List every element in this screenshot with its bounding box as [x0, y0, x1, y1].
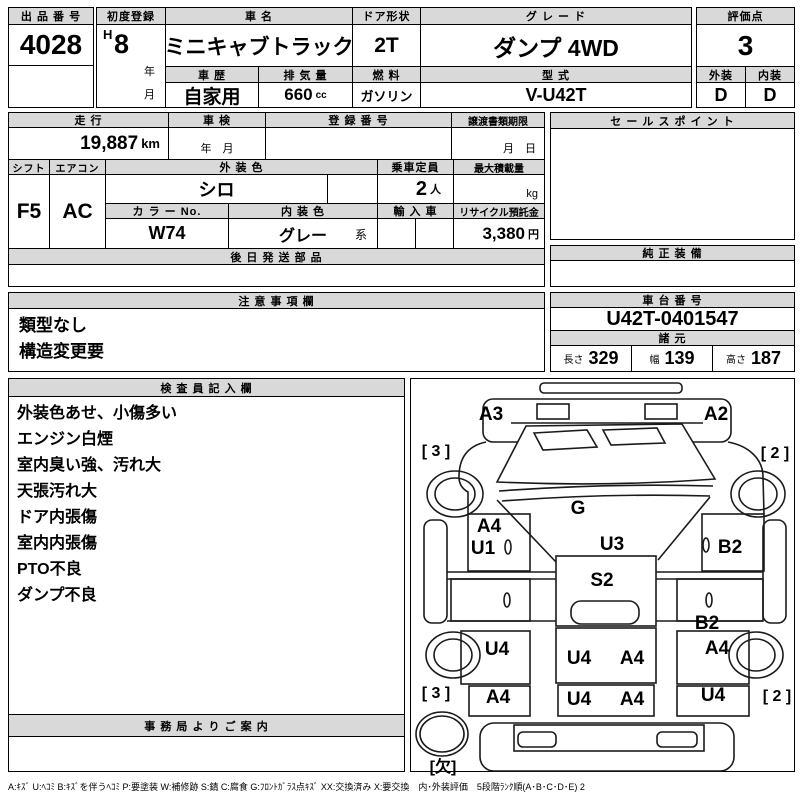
aircon-value: AC	[62, 200, 92, 224]
note-line: 構造変更要	[19, 339, 104, 365]
color-no-cell: W74	[105, 218, 229, 249]
note-line: 類型なし	[19, 313, 87, 339]
equipment-cell	[550, 260, 795, 287]
displacement-header: 排 気 量	[258, 66, 353, 83]
import-cell-2	[415, 218, 454, 249]
damage-code-legend: A:ｷｽﾞ U:ﾍｺﾐ B:ｷｽﾞを伴うﾍｺﾐ P:要塗装 W:補修跡 S:錆 …	[8, 780, 795, 793]
reg-no-header: 登 録 番 号	[265, 112, 452, 128]
car-name-cell: ミニキャブトラック	[165, 24, 353, 67]
exterior-grade-header: 外装	[696, 66, 746, 83]
notes-header: 注 意 事 項 欄	[8, 292, 545, 309]
grade-value: ダンプ 4WD	[493, 29, 619, 63]
spec-width-cell: 幅 139	[631, 345, 713, 372]
chassis-no-cell: U42T-0401547	[550, 307, 795, 331]
fuel-header: 燃 料	[352, 66, 421, 83]
width-label: 幅	[649, 351, 659, 366]
score-header: 評価点	[696, 7, 795, 25]
int-color-value: グレー	[279, 222, 327, 246]
door-value: 2T	[374, 34, 399, 58]
ext-color-sub-cell	[327, 174, 378, 204]
damage-code-a4-left-door: A4	[477, 516, 501, 538]
inspector-line: 天張汚れ大	[17, 479, 97, 505]
damage-code-u4-right-gate: U4	[701, 685, 725, 707]
max-load-cell: kg	[453, 174, 545, 204]
color-no-value: W74	[148, 223, 185, 244]
aircon-cell: AC	[49, 174, 106, 249]
first-reg-header: 初度登録	[96, 7, 166, 25]
later-parts-cell	[8, 264, 545, 287]
door-header: ドア形状	[352, 7, 421, 25]
damage-code-a3: A3	[479, 404, 503, 426]
model-header: 型 式	[420, 66, 692, 83]
import-header: 輸 入 車	[377, 203, 454, 219]
capacity-value: 2	[416, 178, 427, 201]
recycle-header: リサイクル預託金	[453, 203, 545, 219]
reg-no-cell	[265, 127, 452, 160]
int-color-suffix: 系	[355, 226, 367, 243]
auction-no: 4028	[20, 29, 82, 61]
transfer-header: 譲渡書類期限	[451, 112, 545, 128]
sales-points-cell	[550, 128, 795, 240]
import-cell-1	[377, 218, 416, 249]
specs-header: 諸 元	[550, 330, 795, 346]
capacity-header: 乗車定員	[377, 159, 454, 175]
damage-diagram: A3 A2 [ 3 ] [ 2 ] G A4 U1 U3 B2 S2 B2 U4…	[410, 378, 795, 772]
spec-height-cell: 高さ 187	[712, 345, 795, 372]
interior-grade: D	[764, 85, 777, 106]
displacement-value: 660	[284, 85, 312, 105]
damage-code-b2-right-side: B2	[695, 613, 719, 635]
car-name-header: 車 名	[165, 7, 353, 25]
shift-cell: F5	[8, 174, 50, 249]
auction-no-cell: 4028	[8, 24, 94, 66]
ext-color-value: シロ	[199, 176, 235, 202]
ext-color-header: 外 装 色	[105, 159, 378, 175]
displacement-cell: 660 cc	[258, 82, 353, 108]
inspector-header: 検 査 員 記 入 欄	[8, 378, 405, 397]
inspection-value: 年 月	[201, 140, 234, 156]
damage-code-g: G	[571, 498, 586, 520]
model-cell: V-U42T	[420, 82, 692, 108]
auction-no-header: 出 品 番 号	[8, 7, 94, 25]
damage-code-s2: S2	[590, 570, 613, 592]
tire-depth-front-left: [ 3 ]	[422, 443, 450, 461]
damage-code-u4-tailgate: U4	[567, 689, 591, 711]
recycle-unit: 円	[528, 226, 539, 242]
transfer-value: 月 日	[503, 140, 536, 156]
fuel-cell: ガソリン	[352, 82, 421, 108]
interior-grade-cell: D	[745, 82, 795, 108]
first-reg-year: 8	[114, 29, 129, 60]
recycle-cell: 3,380 円	[453, 218, 545, 249]
tire-depth-rear-right: [ 2 ]	[763, 688, 791, 706]
displacement-unit: cc	[316, 90, 327, 101]
damage-code-u3: U3	[600, 534, 624, 556]
damage-code-a4-left-gate: A4	[486, 687, 510, 709]
exterior-grade: D	[715, 85, 728, 106]
history-header: 車 歴	[165, 66, 259, 83]
inspector-line: ドア内張傷	[17, 505, 97, 531]
score-cell: 3	[696, 24, 795, 67]
inspector-line: 室内臭い強、汚れ大	[17, 453, 161, 479]
first-reg-year-suffix: 年	[144, 63, 155, 79]
length-value: 329	[588, 348, 618, 369]
spec-length-cell: 長さ 329	[550, 345, 632, 372]
notes-cell: 類型なし 構造変更要	[8, 308, 545, 372]
transfer-cell: 月 日	[451, 127, 545, 160]
inspection-header: 車 検	[168, 112, 266, 128]
first-reg-month-suffix: 月	[144, 86, 155, 102]
history-value: 自家用	[183, 82, 240, 109]
shift-value: F5	[17, 200, 42, 224]
inspector-line: 外装色あせ、小傷多い	[17, 401, 177, 427]
later-parts-header: 後 日 発 送 部 品	[8, 248, 545, 265]
inspector-line: 室内内張傷	[17, 531, 97, 557]
grade-cell: ダンプ 4WD	[420, 24, 692, 67]
damage-code-a4-tailgate: A4	[620, 689, 644, 711]
inspector-line: エンジン白煙	[17, 427, 113, 453]
chassis-no: U42T-0401547	[606, 308, 738, 331]
interior-grade-header: 内装	[745, 66, 795, 83]
inspector-notes-cell: 外装色あせ、小傷多い エンジン白煙 室内臭い強、汚れ大 天張汚れ大 ドア内張傷 …	[8, 396, 405, 715]
chassis-no-header: 車 台 番 号	[550, 292, 795, 308]
tire-depth-rear-left: [ 3 ]	[422, 685, 450, 703]
office-info-header: 事 務 局 よ り ご 案 内	[8, 714, 405, 737]
max-load-header: 最大積載量	[453, 159, 545, 175]
door-cell: 2T	[352, 24, 421, 67]
shift-header: シフト	[8, 159, 50, 175]
car-name: ミニキャブトラック	[165, 31, 354, 61]
office-info-cell	[8, 736, 405, 772]
damage-code-b2-right-door: B2	[718, 537, 742, 559]
capacity-unit: 人	[430, 181, 441, 197]
inspector-line: PTO不良	[17, 557, 82, 583]
mileage-value: 19,887	[80, 133, 138, 155]
damage-code-a2: A2	[704, 404, 728, 426]
capacity-cell: 2 人	[377, 174, 454, 204]
length-label: 長さ	[563, 351, 583, 366]
fuel-value: ガソリン	[360, 86, 412, 105]
score-value: 3	[738, 30, 754, 62]
damage-code-u4-left-side: U4	[485, 639, 509, 661]
width-value: 139	[664, 348, 694, 369]
exterior-grade-cell: D	[696, 82, 746, 108]
recycle-fee: 3,380	[482, 224, 525, 244]
auction-sheet: 出 品 番 号 4028 初度登録 H 8 年 月 車 名 ミニキャブトラック …	[0, 0, 800, 800]
mileage-unit: km	[141, 136, 160, 151]
damage-code-a4-bed: A4	[620, 648, 644, 670]
int-color-header: 内 装 色	[228, 203, 378, 219]
auction-no-blank-cell	[8, 65, 94, 108]
model-value: V-U42T	[525, 85, 586, 106]
ext-color-cell: シロ	[105, 174, 328, 204]
aircon-header: エアコン	[49, 159, 106, 175]
equipment-header: 純 正 装 備	[550, 245, 795, 261]
first-reg-cell: H 8 年 月	[96, 24, 166, 108]
tire-depth-front-right: [ 2 ]	[761, 445, 789, 463]
height-value: 187	[751, 348, 781, 369]
sales-points-header: セ ー ル ス ポ イ ン ト	[550, 112, 795, 129]
damage-code-u1: U1	[471, 538, 495, 560]
history-cell: 自家用	[165, 82, 259, 108]
spare-tire-missing-mark: [欠]	[430, 753, 457, 777]
first-reg-era: H	[103, 27, 112, 42]
damage-code-a4-right-side: A4	[705, 638, 729, 660]
inspection-cell: 年 月	[168, 127, 266, 160]
inspector-line: ダンプ不良	[17, 583, 97, 609]
max-load-unit: kg	[526, 188, 538, 200]
mileage-header: 走 行	[8, 112, 169, 128]
damage-code-u4-bed: U4	[567, 648, 591, 670]
color-no-header: カ ラ ー No.	[105, 203, 229, 219]
int-color-cell: グレー 系	[228, 218, 378, 249]
height-label: 高さ	[726, 351, 746, 366]
grade-header: グ レ ー ド	[420, 7, 692, 25]
mileage-cell: 19,887 km	[8, 127, 169, 160]
